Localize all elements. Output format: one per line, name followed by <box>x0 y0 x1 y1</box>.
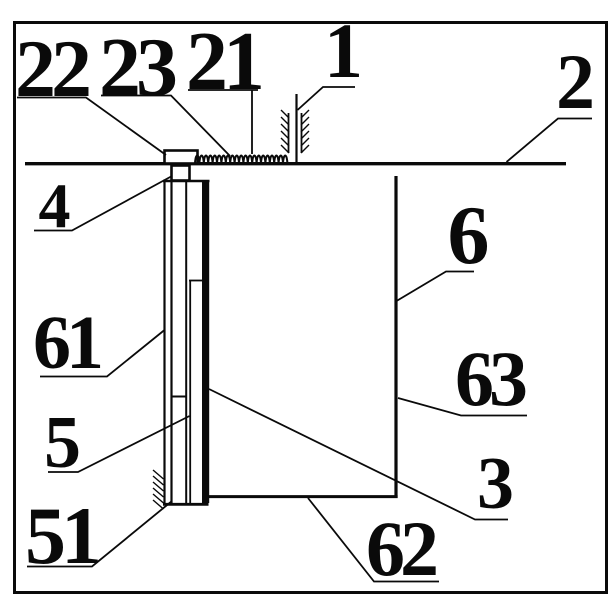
part-labels: 22 23 21 1 2 4 6 61 63 5 3 51 62 <box>15 7 592 592</box>
part-label-61: 61 <box>33 301 101 385</box>
left-column-assembly <box>153 181 210 509</box>
figure-page: 22 23 21 1 2 4 6 61 63 5 3 51 62 <box>0 0 612 599</box>
part-label-23: 23 <box>99 21 176 114</box>
part-label-51: 51 <box>25 490 98 581</box>
part-label-22: 22 <box>15 23 89 114</box>
part-label-5: 5 <box>44 402 79 484</box>
column-bottom-hatching <box>153 470 164 509</box>
pile-bar <box>202 181 209 503</box>
part-label-4: 4 <box>39 170 70 241</box>
part-label-3: 3 <box>477 443 512 525</box>
connector-block <box>172 166 190 181</box>
part-label-62: 62 <box>366 505 436 592</box>
part-label-6: 6 <box>448 189 488 282</box>
part-label-63: 63 <box>455 335 526 422</box>
cap-block <box>165 151 198 164</box>
outer-sleeve-box <box>205 176 398 498</box>
part-label-1: 1 <box>324 7 359 94</box>
part-label-21: 21 <box>186 15 261 108</box>
leader-2 <box>507 119 593 163</box>
patent-figure: 22 23 21 1 2 4 6 61 63 5 3 51 62 <box>0 0 612 599</box>
part-label-2: 2 <box>556 38 592 125</box>
